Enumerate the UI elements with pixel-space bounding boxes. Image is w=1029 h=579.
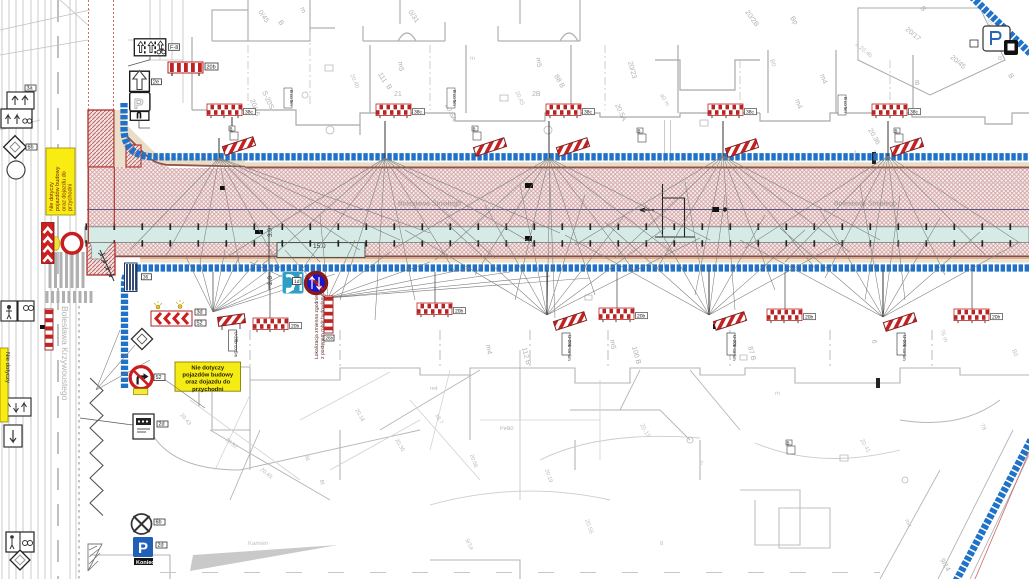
svg-text:15.0: 15.0	[313, 243, 326, 250]
svg-text:B: B	[638, 129, 641, 134]
svg-text:z postępem robót budowlanych: z postępem robót budowlanych	[320, 290, 326, 359]
svg-text:20.43: 20.43	[178, 412, 191, 426]
svg-text:U-20b co 5m: U-20b co 5m	[234, 332, 239, 358]
svg-text:9/14: 9/14	[938, 557, 952, 573]
svg-text:0/45: 0/45	[256, 9, 270, 25]
svg-text:m5: m5	[396, 61, 405, 72]
svg-text:m4: m4	[430, 386, 438, 392]
svg-text:Bolesława Krzywoustego: Bolesława Krzywoustego	[60, 306, 70, 401]
svg-text:m5: m5	[608, 339, 617, 350]
svg-text:20.30: 20.30	[393, 438, 405, 453]
svg-text:P: P	[138, 540, 148, 557]
svg-text:B: B	[230, 127, 233, 132]
svg-text:B: B	[998, 55, 1002, 62]
svg-text:20.45: 20.45	[259, 467, 273, 480]
svg-text:Nie dotyczy: Nie dotyczy	[191, 364, 224, 371]
svg-text:20b: 20b	[291, 324, 300, 330]
svg-text:U-20b co 5m: U-20b co 5m	[902, 335, 907, 361]
svg-text:B: B	[895, 129, 898, 134]
svg-text:87 B: 87 B	[746, 346, 757, 362]
svg-text:76 m: 76 m	[938, 328, 949, 343]
svg-text:20.41: 20.41	[858, 438, 872, 455]
svg-text:20/23: 20/23	[626, 60, 638, 79]
svg-text:B co 5m: B co 5m	[289, 90, 294, 106]
svg-text:m: m	[470, 56, 475, 62]
svg-text:2B: 2B	[532, 91, 541, 98]
svg-text:1d: 1d	[294, 279, 300, 285]
svg-text:Koniec: Koniec	[136, 560, 154, 566]
svg-text:0/31: 0/31	[406, 9, 420, 25]
svg-text:B: B	[473, 127, 476, 132]
svg-text:20b: 20b	[207, 65, 216, 71]
svg-text:52: 52	[197, 321, 203, 327]
svg-text:78: 78	[978, 423, 988, 433]
svg-text:21: 21	[394, 91, 402, 98]
svg-text:20.36: 20.36	[866, 128, 881, 147]
svg-text:6: 6	[870, 339, 878, 344]
svg-text:B: B	[915, 80, 920, 87]
svg-text:m5: m5	[534, 57, 543, 68]
svg-text:m4: m4	[484, 344, 493, 355]
svg-text:36: 36	[303, 454, 310, 461]
svg-text:100 B: 100 B	[630, 346, 642, 366]
svg-text:20b: 20b	[637, 314, 646, 320]
svg-text:20/17: 20/17	[904, 25, 923, 42]
svg-text:oraz dojazdu do: oraz dojazdu do	[185, 379, 230, 386]
svg-text:m4: m4	[793, 98, 803, 110]
svg-text:20.32: 20.32	[224, 437, 238, 450]
svg-text:20/45: 20/45	[949, 53, 968, 70]
svg-text:52: 52	[156, 375, 162, 381]
svg-text:38c: 38c	[910, 110, 919, 116]
svg-text:Bl: Bl	[318, 479, 325, 485]
svg-text:U-20b co 5m: U-20b co 5m	[732, 335, 737, 361]
svg-text:20.4b: 20.4b	[348, 73, 361, 90]
svg-text:38c: 38c	[245, 110, 254, 116]
svg-text:F-8: F-8	[170, 45, 178, 51]
svg-text:B0: B0	[1010, 348, 1019, 358]
svg-text:20.19: 20.19	[543, 469, 553, 484]
svg-text:6b: 6b	[156, 520, 162, 526]
svg-text:B: B	[1006, 73, 1015, 81]
svg-text:pojazdów budowy: pojazdów budowy	[182, 372, 233, 379]
svg-text:U-20b co 5m: U-20b co 5m	[567, 335, 572, 361]
svg-text:Nie dotyczy: Nie dotyczy	[48, 182, 55, 211]
svg-text:88 B: 88 B	[552, 74, 565, 90]
svg-text:Bp: Bp	[788, 15, 799, 26]
svg-text:B: B	[787, 441, 790, 446]
svg-text:20.18: 20.18	[353, 408, 365, 423]
svg-text:20b: 20b	[805, 315, 814, 321]
svg-text:6b: 6b	[28, 145, 34, 151]
svg-text:Bolesława Śmiałego: Bolesława Śmiałego	[398, 199, 461, 208]
svg-text:PeB0: PeB0	[500, 426, 513, 432]
svg-text:20.5A: 20.5A	[613, 103, 627, 123]
svg-text:B: B	[384, 84, 393, 92]
svg-text:a0 m: a0 m	[658, 93, 671, 108]
svg-text:m: m	[775, 391, 780, 397]
svg-text:112 B: 112 B	[520, 347, 531, 366]
svg-text:m4: m4	[903, 518, 913, 529]
svg-text:7: 7	[700, 460, 704, 467]
svg-text:oraz dojazdu do: oraz dojazdu do	[60, 171, 67, 211]
svg-text:Kamien: Kamien	[248, 540, 268, 547]
svg-text:8: 8	[660, 540, 664, 547]
svg-text:20b: 20b	[455, 309, 464, 315]
svg-text:S-20S: S-20S	[260, 90, 275, 111]
svg-text:przychodni: przychodni	[192, 386, 224, 393]
svg-text:2e: 2e	[153, 79, 159, 85]
svg-text:26b: 26b	[326, 336, 334, 341]
svg-text:m4: m4	[818, 73, 828, 85]
svg-text:B0: B0	[768, 58, 777, 68]
svg-text:20.56: 20.56	[468, 454, 478, 469]
svg-text:38c: 38c	[746, 110, 755, 116]
svg-text:m: m	[298, 6, 307, 14]
svg-text:38c: 38c	[584, 110, 593, 116]
svg-text:20.56: 20.56	[583, 518, 595, 535]
svg-text:36: 36	[143, 275, 149, 281]
svg-text:18.7: 18.7	[433, 413, 444, 425]
svg-text:111: 111	[376, 72, 387, 85]
svg-text:2d: 2d	[159, 422, 165, 428]
svg-text:B: B	[276, 19, 285, 27]
svg-text:3.0: 3.0	[267, 228, 274, 237]
svg-text:B co 5m: B co 5m	[843, 97, 848, 113]
svg-text:2d: 2d	[158, 543, 164, 549]
svg-text:B: B	[918, 5, 927, 13]
svg-text:pojazdów budowy: pojazdów budowy	[54, 166, 61, 211]
svg-text:przychodni: przychodni	[67, 184, 74, 211]
svg-text:38c: 38c	[414, 110, 423, 116]
svg-text:a 20.4b: a 20.4b	[854, 41, 874, 60]
svg-text:20/2B: 20/2B	[743, 9, 760, 29]
svg-text:20b: 20b	[992, 315, 1001, 321]
svg-text:3d: 3d	[197, 310, 203, 316]
svg-text:3a: 3a	[27, 86, 34, 92]
svg-text:2.0: 2.0	[267, 276, 274, 285]
svg-text:20.45: 20.45	[513, 90, 526, 107]
svg-text:9/1a: 9/1a	[463, 538, 475, 552]
svg-text:P: P	[134, 96, 143, 112]
svg-text:B co 5m: B co 5m	[452, 90, 457, 106]
svg-text:Nie dotyczy: Nie dotyczy	[4, 352, 11, 383]
